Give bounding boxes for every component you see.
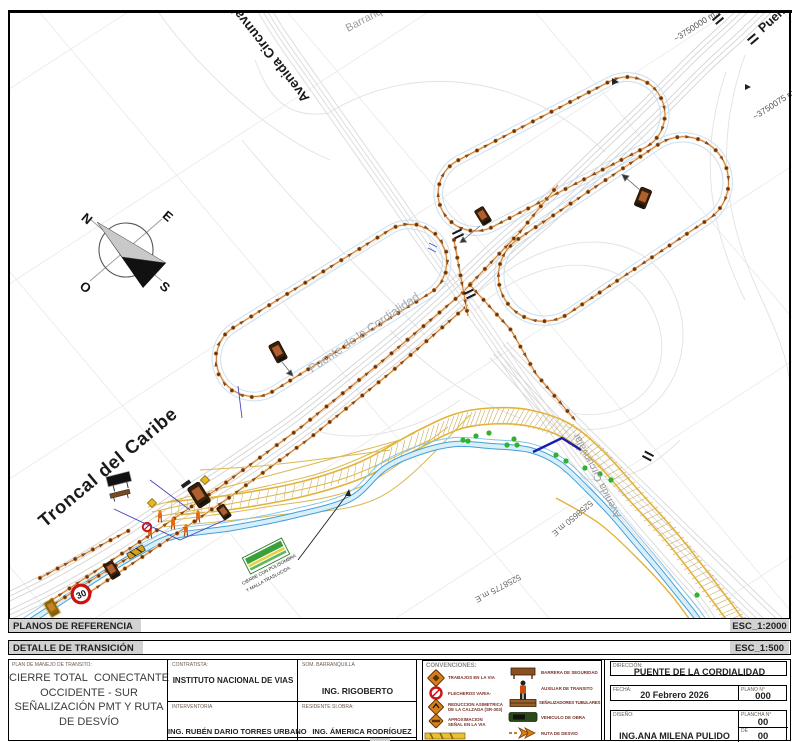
svg-text:5258775 m.E: 5258775 m.E <box>473 572 523 605</box>
svg-text:~3750075 m: ~3750075 m <box>751 87 792 121</box>
svg-text:S: S <box>157 278 174 295</box>
svg-text:5258650 m.E: 5258650 m.E <box>550 498 595 538</box>
svg-text:Puente de la Cordialidad: Puente de la Cordialidad <box>306 289 422 375</box>
svg-text:Avenida Circunvalar: Avenida Circunvalar <box>220 0 312 105</box>
svg-text:N: N <box>79 210 96 228</box>
svg-text:E: E <box>160 208 177 225</box>
svg-text:O: O <box>77 278 94 296</box>
